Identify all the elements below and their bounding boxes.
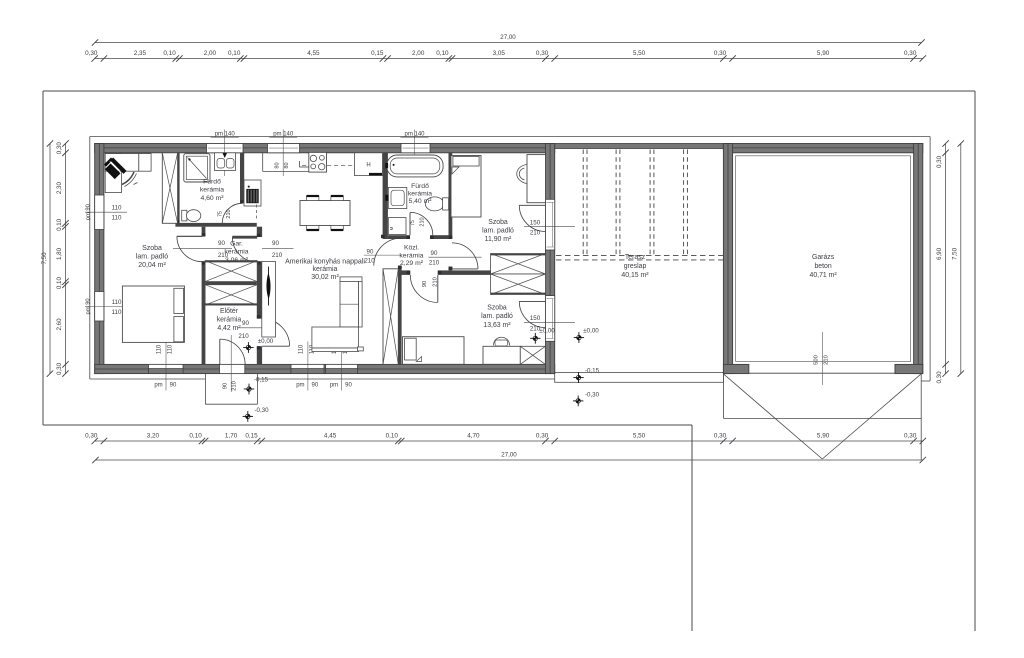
svg-text:greslap: greslap xyxy=(624,263,647,270)
svg-text:2,60: 2,60 xyxy=(56,318,63,331)
svg-text:pm: pm xyxy=(296,382,304,388)
svg-text:pm: pm xyxy=(154,382,162,388)
svg-text:13,63 m²: 13,63 m² xyxy=(483,322,511,329)
svg-text:5,50: 5,50 xyxy=(633,50,646,57)
svg-text:210: 210 xyxy=(823,355,829,365)
svg-text:Szoba: Szoba xyxy=(487,305,507,312)
svg-text:90: 90 xyxy=(223,383,229,389)
svg-text:kerámia: kerámia xyxy=(313,266,338,273)
svg-text:M: M xyxy=(389,226,394,230)
svg-text:27,00: 27,00 xyxy=(500,34,516,41)
svg-text:kerámia: kerámia xyxy=(200,187,224,194)
svg-text:75: 75 xyxy=(218,211,224,217)
svg-text:-0,30: -0,30 xyxy=(254,407,269,414)
svg-text:5,90: 5,90 xyxy=(817,50,830,57)
svg-text:5,50: 5,50 xyxy=(633,433,646,440)
svg-text:90: 90 xyxy=(422,281,428,287)
svg-text:Gar.: Gar. xyxy=(230,240,243,247)
svg-text:0,30: 0,30 xyxy=(936,155,943,168)
svg-text:Fürdő: Fürdő xyxy=(203,178,221,185)
svg-text:4,55: 4,55 xyxy=(307,50,320,57)
svg-text:7,50: 7,50 xyxy=(41,252,48,265)
svg-text:0,10: 0,10 xyxy=(163,50,176,57)
svg-text:lam. padló: lam. padló xyxy=(482,228,514,235)
svg-text:110: 110 xyxy=(168,344,174,354)
svg-text:-0,30: -0,30 xyxy=(585,392,600,399)
svg-text:90: 90 xyxy=(242,320,249,327)
svg-text:Garázs: Garázs xyxy=(812,254,835,261)
svg-text:lam. padló: lam. padló xyxy=(136,253,168,260)
svg-text:Közl.: Közl. xyxy=(404,245,419,252)
svg-text:0,30: 0,30 xyxy=(536,50,549,57)
svg-text:0,30: 0,30 xyxy=(714,433,727,440)
svg-text:90: 90 xyxy=(367,248,374,255)
svg-text:1,80: 1,80 xyxy=(56,247,63,260)
svg-text:150: 150 xyxy=(530,219,541,226)
svg-text:0,10: 0,10 xyxy=(56,218,63,231)
svg-text:75: 75 xyxy=(410,220,416,226)
svg-text:Terasz: Terasz xyxy=(625,254,646,261)
svg-text:0,30: 0,30 xyxy=(85,433,98,440)
svg-text:4,70: 4,70 xyxy=(467,433,480,440)
svg-text:Szoba: Szoba xyxy=(142,245,162,252)
svg-text:2,00: 2,00 xyxy=(204,50,217,57)
svg-text:0,30: 0,30 xyxy=(714,50,727,57)
svg-text:110: 110 xyxy=(112,215,122,222)
svg-text:110: 110 xyxy=(299,344,305,354)
svg-text:40,15 m²: 40,15 m² xyxy=(621,272,649,279)
svg-text:0,10: 0,10 xyxy=(189,433,202,440)
svg-text:110: 110 xyxy=(112,205,122,212)
svg-text:210: 210 xyxy=(231,381,237,391)
svg-text:0,10: 0,10 xyxy=(436,50,449,57)
svg-text:210: 210 xyxy=(433,277,439,287)
svg-text:0,10: 0,10 xyxy=(228,50,241,57)
svg-text:90: 90 xyxy=(170,382,177,388)
svg-text:5,90: 5,90 xyxy=(817,433,830,440)
svg-text:0,15: 0,15 xyxy=(245,433,258,440)
svg-text:30,02 m²: 30,02 m² xyxy=(311,274,339,281)
svg-text:40,71 m²: 40,71 m² xyxy=(809,272,837,279)
svg-text:110: 110 xyxy=(112,309,122,316)
svg-text:kerámia: kerámia xyxy=(408,191,432,198)
svg-text:0,10: 0,10 xyxy=(386,433,399,440)
svg-text:80: 80 xyxy=(275,162,281,168)
svg-text:2,00: 2,00 xyxy=(412,50,425,57)
svg-text:210: 210 xyxy=(226,209,232,218)
svg-text:pm 140: pm 140 xyxy=(404,131,425,137)
svg-text:6,90: 6,90 xyxy=(936,247,943,260)
svg-text:90: 90 xyxy=(431,250,438,257)
svg-text:0,15: 0,15 xyxy=(371,50,384,57)
svg-text:110: 110 xyxy=(157,344,163,354)
svg-text:2,35: 2,35 xyxy=(134,50,147,57)
svg-text:3,06 m²: 3,06 m² xyxy=(225,257,249,264)
svg-text:90: 90 xyxy=(345,382,352,388)
svg-text:110: 110 xyxy=(112,299,122,306)
svg-text:kerámia: kerámia xyxy=(399,252,423,259)
svg-text:27,00: 27,00 xyxy=(501,451,517,458)
svg-text:2,29 m²: 2,29 m² xyxy=(400,260,424,267)
svg-text:Fürdő: Fürdő xyxy=(411,183,429,190)
svg-text:7,50: 7,50 xyxy=(951,247,958,260)
svg-text:1,70: 1,70 xyxy=(225,433,238,440)
svg-text:beton: beton xyxy=(814,263,831,270)
svg-text:kerámia: kerámia xyxy=(224,249,248,256)
svg-text:4,42 m²: 4,42 m² xyxy=(217,325,241,332)
svg-text:±0,00: ±0,00 xyxy=(258,338,274,345)
svg-text:0,10: 0,10 xyxy=(56,277,63,290)
svg-text:210: 210 xyxy=(238,333,249,340)
svg-text:-0,15: -0,15 xyxy=(585,368,600,375)
svg-text:210: 210 xyxy=(272,252,283,259)
svg-text:4,45: 4,45 xyxy=(324,433,337,440)
svg-text:5,40 m²: 5,40 m² xyxy=(408,198,432,205)
svg-text:0,30: 0,30 xyxy=(85,50,98,57)
svg-text:0,30: 0,30 xyxy=(56,142,63,155)
svg-text:500: 500 xyxy=(813,355,819,365)
svg-text:pm 90: pm 90 xyxy=(86,298,92,314)
svg-text:Előtér: Előtér xyxy=(220,308,239,315)
svg-text:±0,00: ±0,00 xyxy=(539,328,555,335)
svg-text:pm 140: pm 140 xyxy=(273,131,294,137)
svg-text:80: 80 xyxy=(284,162,290,168)
svg-text:H: H xyxy=(366,163,370,169)
svg-text:11,90 m²: 11,90 m² xyxy=(485,236,512,243)
svg-text:±0,00: ±0,00 xyxy=(583,328,599,335)
svg-text:0,30: 0,30 xyxy=(904,50,917,57)
svg-text:0,30: 0,30 xyxy=(936,371,943,384)
svg-text:2,30: 2,30 xyxy=(56,182,63,195)
svg-text:Szoba: Szoba xyxy=(488,219,508,226)
svg-text:0,30: 0,30 xyxy=(536,433,549,440)
svg-text:pm 90: pm 90 xyxy=(86,204,92,220)
svg-text:90: 90 xyxy=(272,240,279,247)
svg-text:20,04 m²: 20,04 m² xyxy=(138,262,166,269)
svg-text:210: 210 xyxy=(429,259,440,266)
svg-text:210: 210 xyxy=(530,230,541,237)
svg-text:lam. padló: lam. padló xyxy=(481,313,513,320)
svg-text:90: 90 xyxy=(218,240,225,247)
svg-text:pm 140: pm 140 xyxy=(215,131,236,137)
svg-text:pm: pm xyxy=(330,382,338,388)
svg-text:kerámia: kerámia xyxy=(217,317,242,324)
svg-text:Amerikai konyhás nappali: Amerikai konyhás nappali xyxy=(285,258,365,265)
svg-text:3,05: 3,05 xyxy=(493,50,506,57)
svg-text:3,20: 3,20 xyxy=(147,433,160,440)
svg-text:90: 90 xyxy=(312,382,319,388)
svg-text:0,30: 0,30 xyxy=(904,433,917,440)
svg-text:210: 210 xyxy=(420,217,426,226)
svg-text:-0,15: -0,15 xyxy=(254,376,269,383)
svg-text:0,30: 0,30 xyxy=(56,362,63,375)
svg-text:210: 210 xyxy=(364,257,375,264)
svg-text:4,60 m²: 4,60 m² xyxy=(200,195,224,202)
svg-text:150: 150 xyxy=(530,315,541,322)
